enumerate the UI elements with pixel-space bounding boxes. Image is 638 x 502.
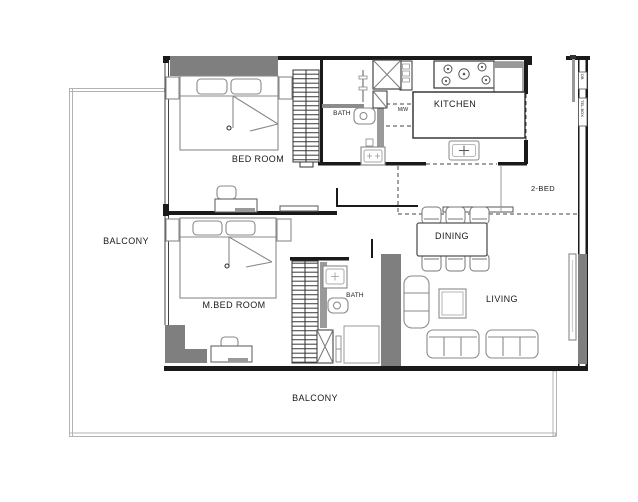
wardrobe-master [292,261,318,363]
floor-plan-drawing [0,0,638,502]
label-balcony-left: BALCONY [92,237,160,246]
label-microwave: M/W [394,108,412,113]
floor-plan: BED ROOM M.BED ROOM BATH BATH KITCHEN M/… [0,0,638,502]
entry-door-icon [572,57,575,102]
sofa-icon [486,330,538,358]
armchair-icon [404,276,429,328]
shelf-icon [280,206,318,211]
pillow-icon [231,79,261,94]
wardrobe-bedroom [293,70,319,167]
label-balcony-bottom: BALCONY [275,394,355,403]
coffee-table-icon [439,289,466,318]
pillow-icon [193,221,222,235]
pillow-icon [226,221,255,235]
left-wall-window [165,63,169,325]
nightstand-icon [277,219,291,241]
nightstand-icon [166,77,179,99]
label-bath-master: BATH [344,293,366,300]
sofa-icon [427,330,479,358]
washer-icon [400,61,412,90]
nightstand-icon [279,77,292,99]
bath-master-fixtures [317,262,379,363]
label-living: LIVING [470,295,534,304]
nightstand-icon [166,219,179,241]
label-db-panel: DB [580,74,584,80]
chair-icon [217,186,236,199]
label-bath-top: BATH [331,111,353,118]
dining-chair-icon [446,207,465,224]
shower-tray-icon [344,326,379,363]
dining-chair-icon [422,207,441,224]
bed-icon [180,76,278,150]
label-kitchen: KITCHEN [413,100,497,109]
label-dining: DINING [417,232,487,241]
label-master-bedroom: M.BED ROOM [186,301,282,310]
kitchen-fixtures [400,61,525,160]
label-tel-box: TEL.BOX [580,100,584,117]
dining-chair-icon [470,207,489,224]
label-unit-type: 2-BED [522,185,564,193]
label-bedroom: BED ROOM [210,155,306,164]
pillow-icon [197,79,227,94]
